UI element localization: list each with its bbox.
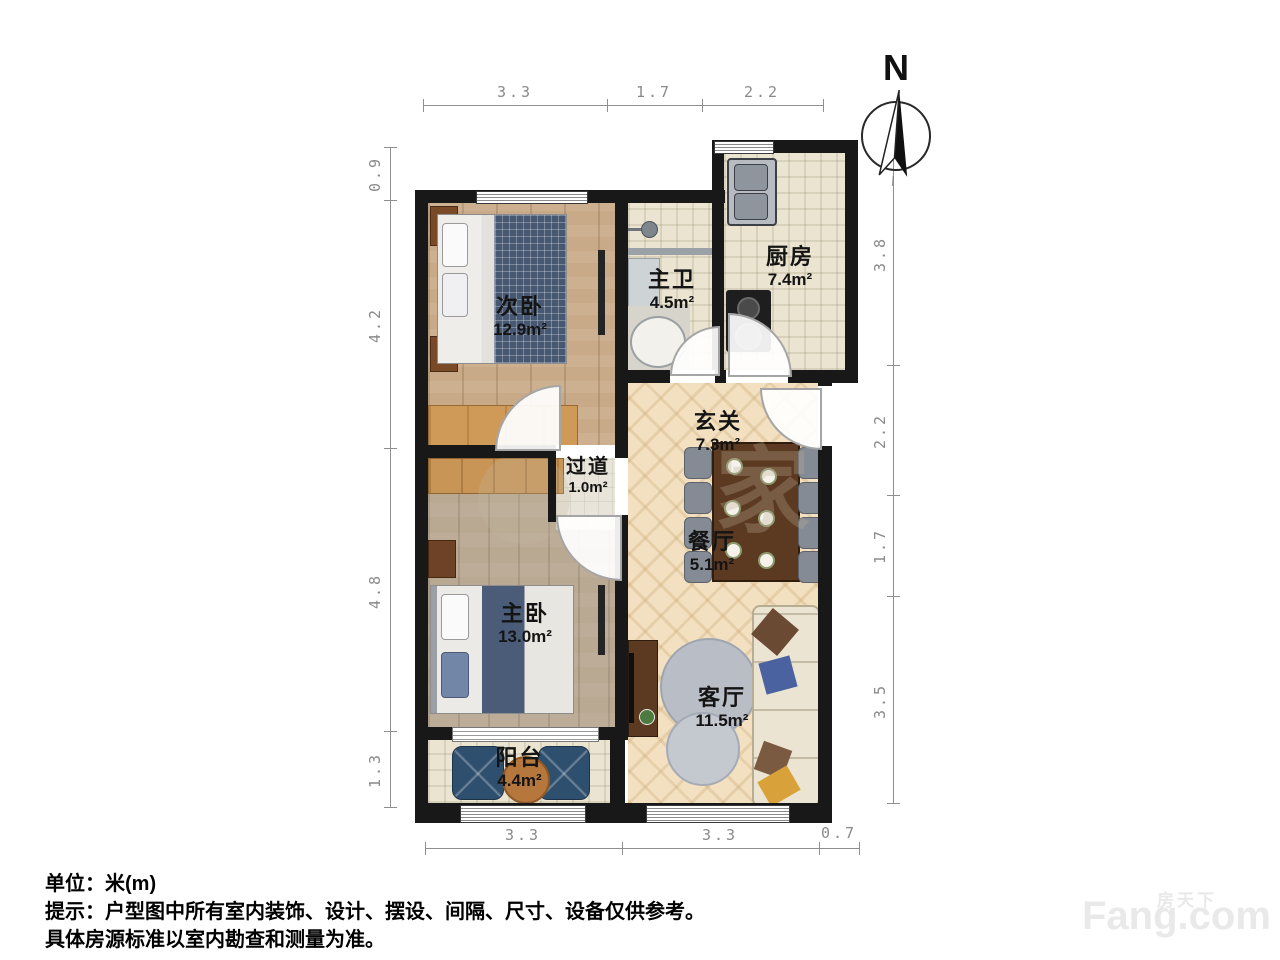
dim-top-label: 2.2 — [732, 83, 792, 101]
dim-tick — [384, 448, 397, 449]
dim-tick — [607, 99, 608, 112]
dim-left-label: 4.8 — [366, 561, 384, 621]
tv-stand-icon — [628, 640, 658, 737]
room-label-dining: 餐厅 5.1m² — [662, 530, 762, 575]
compass-north-icon: N — [850, 44, 942, 191]
room-label-corridor: 过道 1.0m² — [546, 456, 630, 497]
pillow-icon — [441, 594, 469, 640]
dim-line-bottom — [425, 848, 859, 849]
dim-tick — [887, 596, 900, 597]
dim-tick — [823, 99, 824, 112]
dim-tick — [384, 147, 397, 148]
sink-icon — [727, 158, 777, 226]
window-icon — [646, 805, 790, 823]
footer-notes: 单位：米(m) 提示：户型图中所有室内装饰、设计、摆设、间隔、尺寸、设备仅供参考… — [45, 870, 705, 954]
dim-tick — [702, 99, 703, 112]
dim-tick — [859, 842, 860, 855]
dim-top-label: 1.7 — [624, 83, 684, 101]
pillow-icon — [751, 608, 799, 656]
dim-bottom-label: 3.3 — [493, 826, 553, 844]
room-label-living: 客厅 11.5m² — [672, 686, 772, 731]
bed-icon — [437, 214, 567, 364]
room-label-hall: 玄关 7.3m² — [668, 410, 768, 455]
wall — [610, 727, 625, 823]
dim-left-label: 1.3 — [366, 740, 384, 800]
window-icon — [460, 805, 586, 823]
plant-icon — [639, 709, 655, 725]
dim-bottom-label: 0.7 — [809, 824, 869, 842]
dim-tick — [425, 842, 426, 855]
tip-line: 提示：户型图中所有室内装饰、设计、摆设、间隔、尺寸、设备仅供参考。 — [45, 898, 705, 926]
dim-line-top — [423, 105, 823, 106]
brand-logo-watermark: Fang.com — [1082, 894, 1271, 939]
dim-right-label: 2.2 — [871, 401, 889, 461]
dim-left-label: 4.2 — [366, 295, 384, 355]
tv-icon — [629, 653, 634, 723]
pillow-icon — [442, 273, 468, 317]
dim-tick — [887, 495, 900, 496]
room-label-master-bedroom: 主卧 13.0m² — [475, 602, 575, 647]
door-leaf-icon — [598, 585, 605, 655]
pillow-icon — [441, 652, 469, 698]
sliding-door-icon — [452, 727, 599, 742]
svg-text:N: N — [883, 47, 909, 88]
dim-right-label: 3.8 — [871, 224, 889, 284]
room-label-balcony: 阳台 4.4m² — [467, 746, 572, 791]
dim-bottom-label: 3.3 — [690, 826, 750, 844]
dim-right-label: 1.7 — [871, 516, 889, 576]
door-leaf-icon — [598, 250, 605, 335]
dim-tick — [423, 99, 424, 112]
dim-top-label: 3.3 — [485, 83, 545, 101]
room-label-bathroom: 主卫 4.5m² — [627, 268, 717, 313]
towel-shelf-icon — [628, 248, 712, 255]
room-label-kitchen: 厨房 7.4m² — [740, 245, 840, 290]
dim-tick — [887, 365, 900, 366]
window-icon — [476, 191, 588, 204]
dim-line-left — [390, 147, 391, 807]
dim-line-right — [893, 140, 894, 803]
dim-tick — [384, 731, 397, 732]
pillow-icon — [442, 223, 468, 267]
tip-line: 具体房源标准以室内勘查和测量为准。 — [45, 926, 705, 954]
shower-icon — [641, 221, 658, 238]
room-label-secondary-bedroom: 次卧 12.9m² — [470, 295, 570, 340]
floorplan-canvas: 3.3 1.7 2.2 3.3 3.3 0.7 0.9 4.2 4.8 1.3 … — [0, 0, 1280, 960]
wall — [845, 140, 858, 382]
chair-icon — [684, 482, 712, 514]
dim-tick — [622, 842, 623, 855]
dim-tick — [887, 803, 900, 804]
nightstand-icon — [428, 540, 456, 578]
blanket-pattern — [495, 215, 566, 363]
dim-right-label: 3.5 — [871, 671, 889, 731]
sink-bowl — [734, 193, 768, 220]
wall — [415, 727, 452, 740]
dim-tick — [819, 842, 820, 855]
dim-left-label: 0.9 — [366, 144, 384, 204]
dim-tick — [384, 807, 397, 808]
unit-note: 单位：米(m) — [45, 870, 705, 898]
window-icon — [714, 141, 774, 154]
sink-bowl — [734, 164, 768, 191]
dim-tick — [384, 200, 397, 201]
